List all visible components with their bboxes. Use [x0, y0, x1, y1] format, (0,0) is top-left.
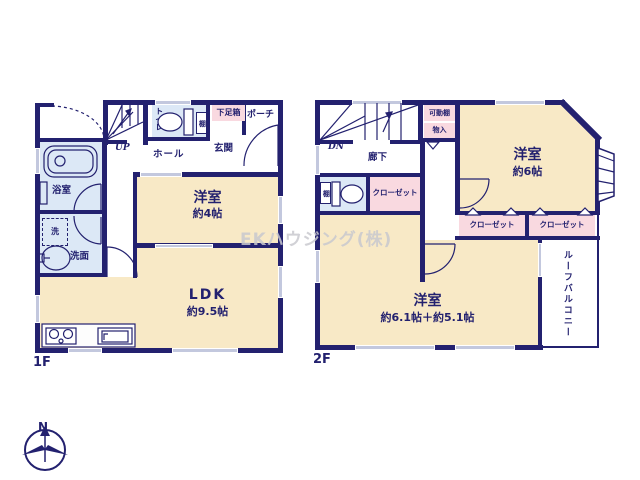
- bathroom-area: [40, 142, 102, 212]
- roof-balcony-label: ルーフバルコニー: [561, 250, 571, 338]
- window: [172, 348, 238, 353]
- corridor-label: 廊下: [368, 153, 387, 163]
- closet-b-label: クローゼット: [529, 221, 595, 229]
- bath-label: 浴室: [52, 186, 71, 196]
- storage-label: 物入: [424, 123, 455, 138]
- closet-hall-label: クローゼット: [370, 189, 420, 197]
- window: [278, 266, 283, 298]
- hall-label: ホール: [153, 150, 185, 160]
- window: [455, 345, 515, 350]
- movable-shelf-label: 可動棚: [424, 105, 455, 121]
- room11-area-right: [425, 240, 538, 345]
- window: [315, 250, 320, 283]
- porch-label: ポーチ: [247, 111, 274, 121]
- window: [35, 148, 40, 174]
- sliding-door: [155, 244, 213, 248]
- room4-name: 洋室: [137, 191, 278, 206]
- window: [495, 100, 545, 105]
- toilet-1f-label: トイレ: [154, 107, 163, 131]
- watermark: EKハウジング(株): [240, 225, 392, 250]
- stairs-down-label: DN: [328, 143, 344, 153]
- sliding-door: [140, 172, 182, 177]
- toilet-shelf-2f: 棚: [320, 182, 331, 204]
- window: [538, 243, 542, 277]
- window: [155, 100, 191, 105]
- floor-plan: UP トイレ 棚 下足箱 ポーチ 玄関 ホール 浴室 洗 洗面 洋室 約4帖 L…: [0, 0, 640, 480]
- window: [278, 196, 283, 224]
- balcony-railing: [597, 214, 599, 347]
- ldk-size: 約9.5帖: [137, 306, 278, 318]
- compass-icon: [22, 426, 68, 470]
- floor-label-2f: 2F: [313, 352, 331, 367]
- ldk-name: LDK: [137, 288, 278, 303]
- ldk-area-upper: [137, 248, 278, 277]
- window: [35, 295, 40, 323]
- balcony-railing: [541, 346, 599, 348]
- toilet-shelf-1f: 棚: [196, 112, 207, 134]
- room11-name: 洋室: [320, 294, 535, 309]
- window: [315, 145, 320, 175]
- room6-size: 約6帖: [460, 166, 595, 178]
- room11-size: 約6.1帖＋約5.1帖: [320, 312, 535, 324]
- floor-label-1f: 1F: [33, 355, 51, 370]
- laundry-space: 洗: [42, 218, 68, 246]
- genkan-label: 玄関: [214, 144, 233, 154]
- window: [352, 100, 402, 105]
- closet-a-label: クローゼット: [459, 221, 525, 229]
- washroom-label: 洗面: [70, 252, 89, 262]
- room6-name: 洋室: [460, 148, 595, 163]
- room4-size: 約4帖: [137, 208, 278, 220]
- window: [68, 348, 102, 353]
- compass-north-label: N: [38, 420, 48, 434]
- shoebox-label: 下足箱: [212, 105, 245, 121]
- stairs-up-label: UP: [115, 144, 130, 154]
- window: [355, 345, 435, 350]
